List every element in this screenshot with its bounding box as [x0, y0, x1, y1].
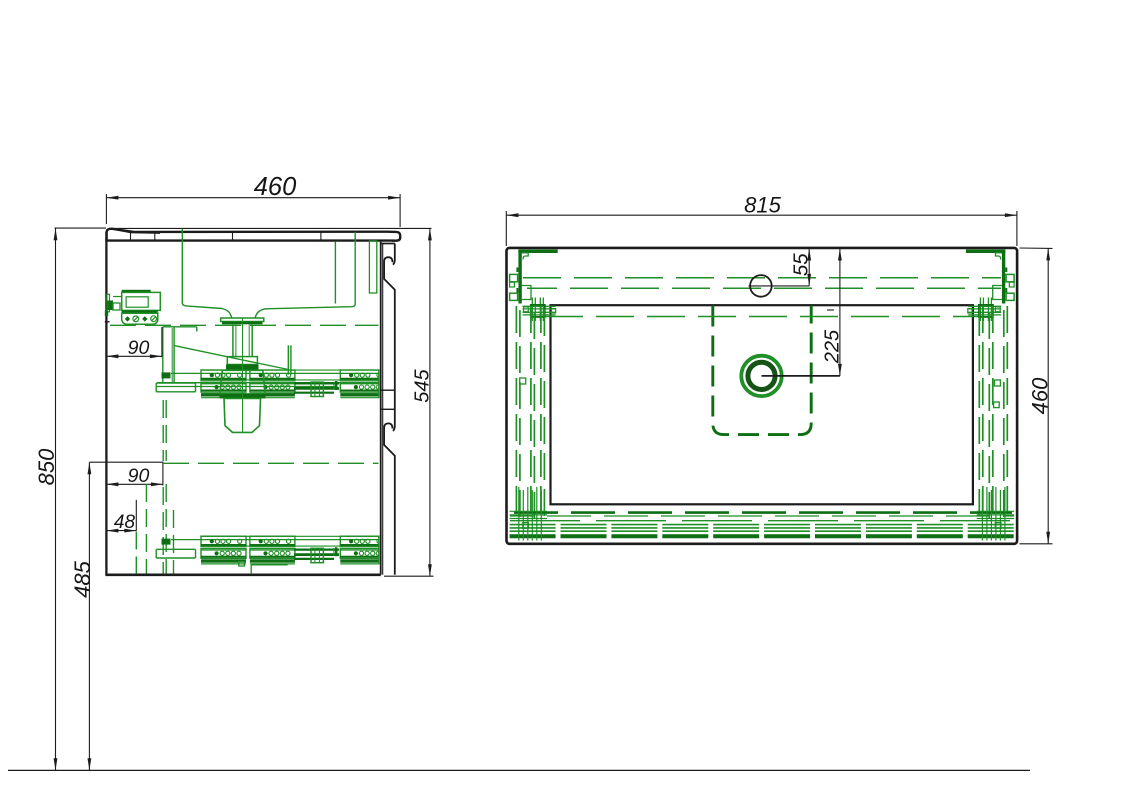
svg-text:460: 460 [254, 173, 297, 201]
svg-text:815: 815 [744, 193, 781, 218]
svg-text:90: 90 [128, 465, 150, 487]
svg-text:48: 48 [114, 512, 136, 533]
svg-text:545: 545 [412, 368, 434, 402]
svg-text:460: 460 [1028, 377, 1053, 414]
svg-text:850: 850 [34, 448, 59, 485]
svg-text:90: 90 [128, 337, 150, 359]
svg-text:225: 225 [821, 329, 843, 364]
svg-text:485: 485 [70, 560, 95, 597]
svg-text:55: 55 [790, 253, 813, 276]
